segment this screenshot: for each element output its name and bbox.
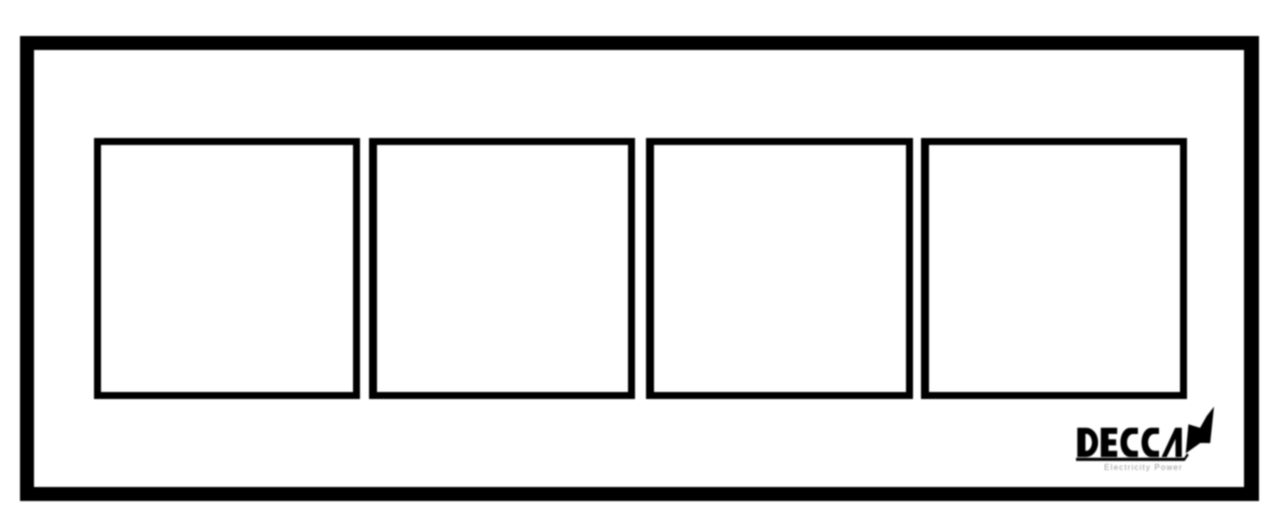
svg-text:Electricity Power: Electricity Power [1104, 463, 1183, 472]
